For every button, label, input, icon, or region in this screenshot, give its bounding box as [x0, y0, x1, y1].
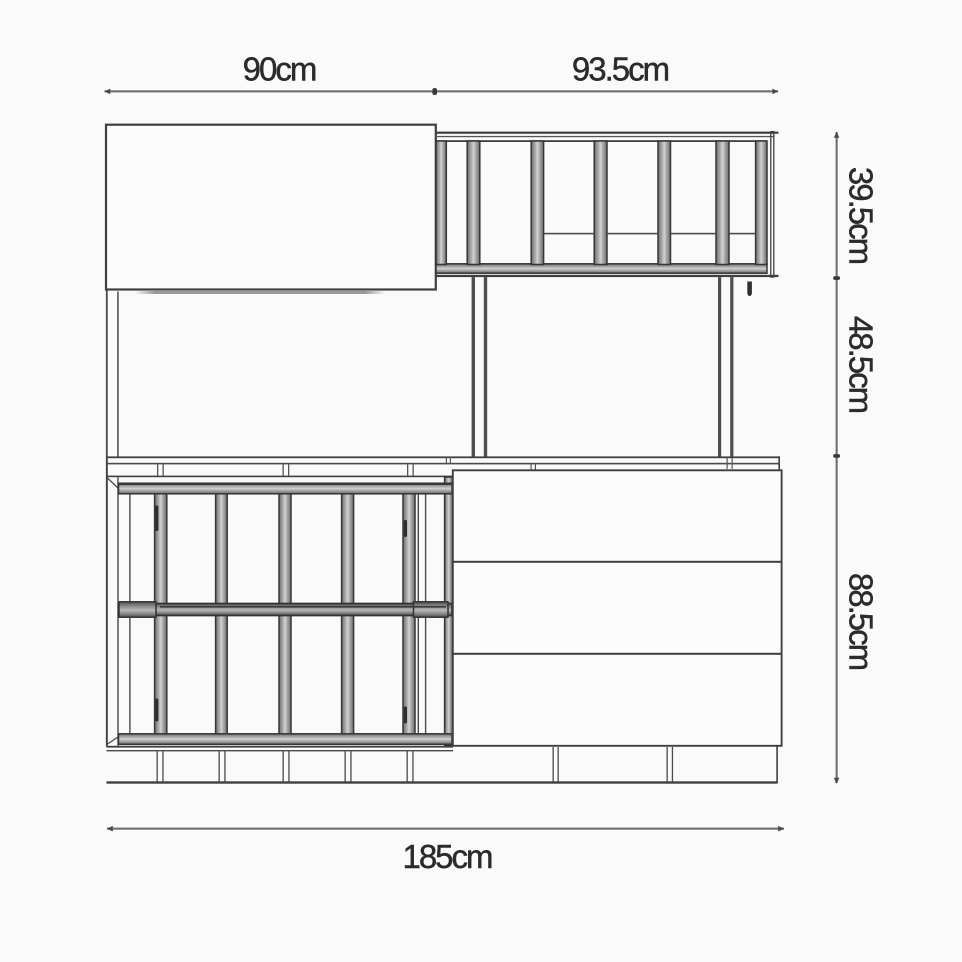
svg-text:48.5cm: 48.5cm [843, 316, 880, 413]
svg-text:185cm: 185cm [402, 838, 492, 875]
svg-text:88.5cm: 88.5cm [843, 573, 880, 670]
svg-text:93.5cm: 93.5cm [572, 51, 669, 88]
svg-text:90cm: 90cm [243, 51, 316, 88]
svg-text:39.5cm: 39.5cm [843, 167, 880, 264]
